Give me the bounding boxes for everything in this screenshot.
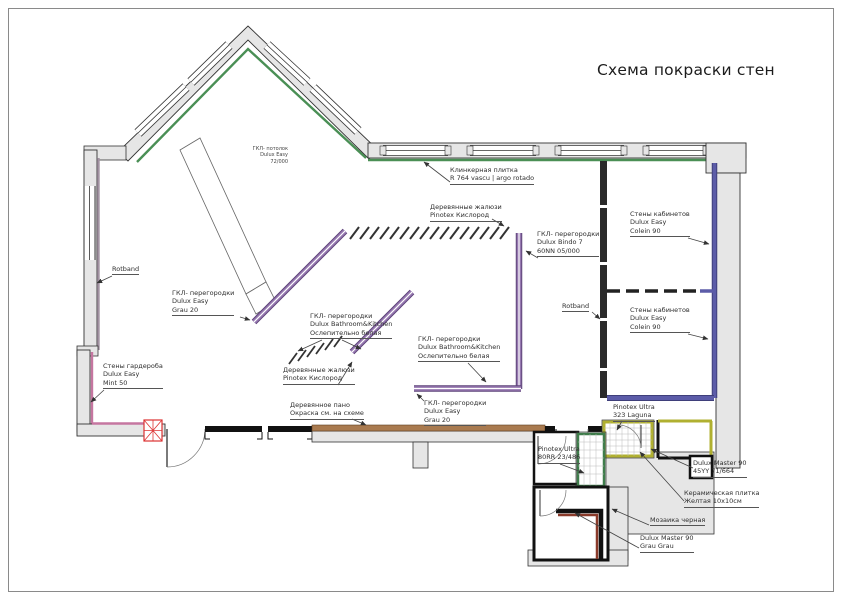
label-line: Dulux Easy (630, 218, 690, 226)
label-office-lower: Стены кабинетов Dulux Easy Colein 90 (630, 306, 690, 333)
door-left (167, 429, 205, 467)
label-bk-right: ГКЛ- перегородки Dulux Bathroom&Kitchen … (418, 335, 500, 362)
label-line: 72/000 (238, 159, 288, 165)
label-line: 323 Laguna (613, 411, 655, 419)
top-wall (368, 143, 746, 160)
label-line: Керамическая плитка (684, 489, 759, 497)
drawing-page: Схема покраски стен ГКЛ- потолок Dulux E… (0, 0, 842, 600)
label-line: 80RR 23/486 (538, 453, 580, 461)
label-line: Rotband (112, 265, 139, 273)
label-line: Стены кабинетов (630, 306, 690, 314)
label-line: 60NN 05/000 (537, 247, 599, 255)
office-left-wall (600, 161, 607, 398)
label-line: Стены кабинетов (630, 210, 690, 218)
label-ceiling: ГКЛ- потолок Dulux Easy 72/000 (238, 146, 288, 165)
wardrobe-walls (77, 420, 205, 467)
label-gkl-grau-bottom: ГКЛ- перегородки Dulux Easy Grau 20 (424, 399, 486, 426)
label-laguna: Pinotex Ultra 323 Laguna (613, 403, 655, 422)
label-line: Dulux Master 90 (693, 459, 747, 467)
label-pinotex-80rr: Pinotex Ultra 80RR 23/486 (538, 445, 580, 464)
label-jalousie-bottom: Деревянные жалюзи Pinotex Кислород (283, 366, 355, 385)
label-bindo: ГКЛ- перегородки Dulux Bindo 7 60NN 05/0… (537, 230, 599, 257)
label-line: Colein 90 (630, 227, 690, 235)
office-rooms (600, 161, 714, 398)
label-line: Мозаика черная (650, 516, 705, 524)
label-line: Деревянные жалюзи (430, 203, 502, 211)
laguna-tile-area (602, 420, 654, 458)
label-line: Colein 90 (630, 323, 690, 331)
label-rotband-right: Rotband (562, 302, 589, 312)
green-tile-area (576, 432, 606, 488)
shaft-red-box (144, 420, 162, 441)
label-line: Grau 20 (172, 306, 234, 314)
label-line: Grau 20 (424, 416, 486, 424)
label-line: Pinotex Кислород (430, 211, 502, 219)
right-wall (706, 143, 746, 468)
label-office-upper: Стены кабинетов Dulux Easy Colein 90 (630, 210, 690, 237)
label-line: Ослепительно белая (310, 329, 392, 337)
bottom-room (534, 487, 608, 560)
label-rotband-left: Rotband (112, 265, 139, 275)
label-line: 45YY 71/664 (693, 467, 747, 475)
center-partitions (254, 227, 521, 389)
label-ceramic: Керамическая плитка Желтая 10x10см (684, 489, 759, 508)
label-line: Желтая 10x10см (684, 497, 759, 505)
label-line: Dulux Bathroom&Kitchen (310, 320, 392, 328)
label-line: R 764 vascu | argo rotado (450, 174, 534, 182)
label-line: Dulux Easy (172, 297, 234, 305)
label-line: Клинкерная плитка (450, 166, 534, 174)
label-line: Dulux Easy (103, 370, 163, 378)
wood-jalousie-row (350, 227, 509, 239)
page-title: Схема покраски стен (597, 61, 775, 79)
label-jalousie-top: Деревянные жалюзи Pinotex Кислород (430, 203, 502, 222)
label-line: Окраска см. на схеме (290, 409, 364, 417)
label-line: Dulux Bindo 7 (537, 238, 599, 246)
label-line: Стены гардероба (103, 362, 163, 370)
label-master-grau: Dulux Master 90 Grau Grau (640, 534, 694, 553)
label-bk-center: ГКЛ- перегородки Dulux Bathroom&Kitchen … (310, 312, 392, 339)
label-line: Pinotex Кислород (283, 374, 355, 382)
label-line: Pinotex Ultra (538, 445, 580, 453)
label-line: Dulux Master 90 (640, 534, 694, 542)
label-line: ГКЛ- перегородки (537, 230, 599, 238)
label-line: ГКЛ- перегородки (418, 335, 500, 343)
label-line: Dulux Easy (630, 314, 690, 322)
label-line: Pinotex Ultra (613, 403, 655, 411)
label-line: Mint 50 (103, 379, 163, 387)
label-gkl-grau-left: ГКЛ- перегородки Dulux Easy Grau 20 (172, 289, 234, 316)
label-line: ГКЛ- перегородки (424, 399, 486, 407)
wall-stub (413, 442, 428, 468)
label-line: Dulux Easy (424, 407, 486, 415)
label-wardrobe: Стены гардероба Dulux Easy Mint 50 (103, 362, 163, 389)
left-wall (77, 146, 126, 432)
label-line: Деревянные жалюзи (283, 366, 355, 374)
label-wood-panel: Деревянное пано Окраска см. на схеме (290, 401, 364, 420)
floor-plan (0, 0, 842, 600)
label-line: ГКЛ- перегородки (310, 312, 392, 320)
label-klinker: Клинкерная плитка R 764 vascu | argo rot… (450, 166, 534, 185)
label-mosaic: Мозаика черная (650, 516, 705, 526)
label-master-45yy: Dulux Master 90 45YY 71/664 (693, 459, 747, 478)
label-line: Dulux Bathroom&Kitchen (418, 343, 500, 351)
label-line: Ослепительно белая (418, 352, 500, 360)
label-line: ГКЛ- перегородки (172, 289, 234, 297)
label-line: Grau Grau (640, 542, 694, 550)
wood-jalousie-row-2 (289, 336, 342, 364)
label-line: Rotband (562, 302, 589, 310)
label-line: Деревянное пано (290, 401, 364, 409)
bay-window (118, 26, 378, 314)
